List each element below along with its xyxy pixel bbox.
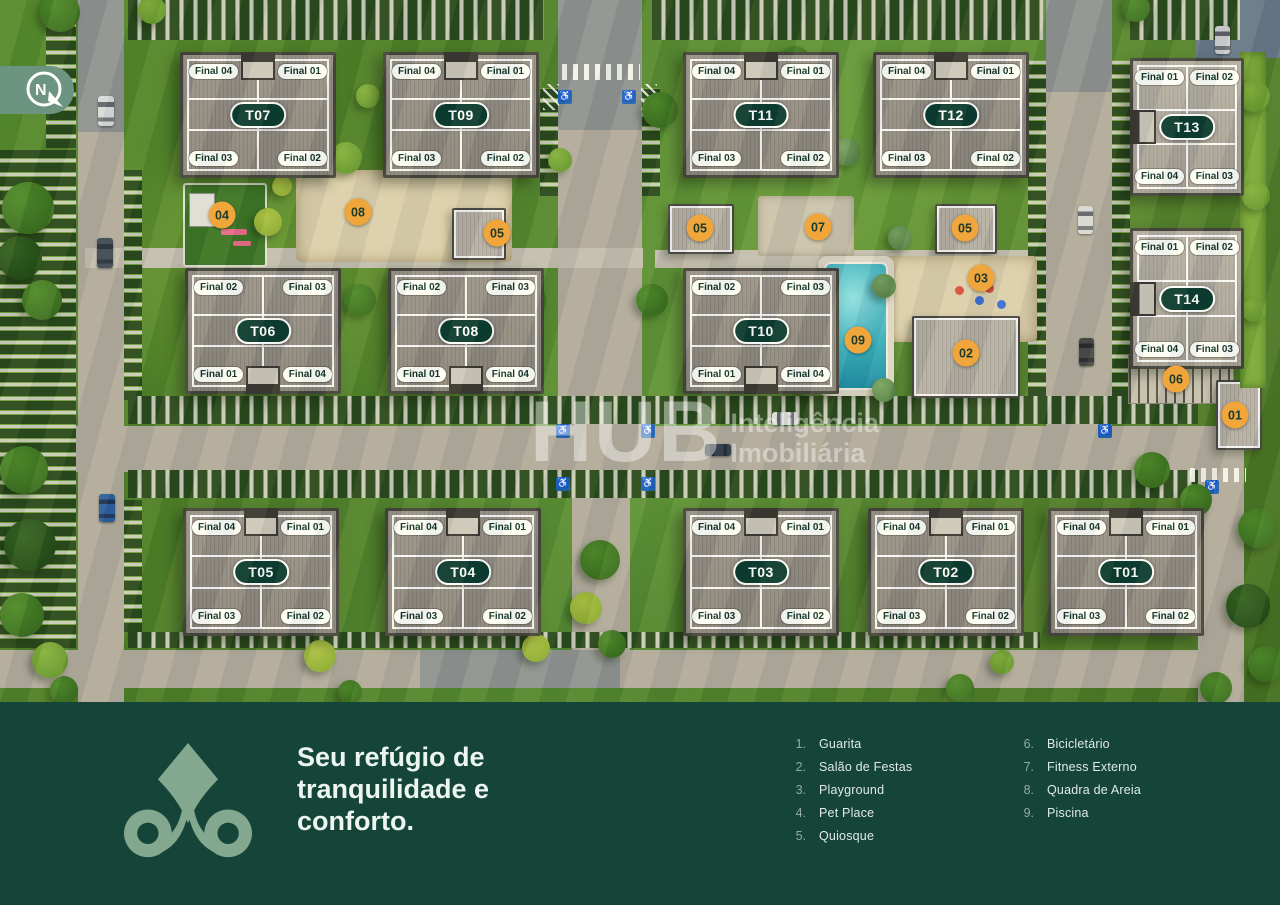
legend-item-number: 6. [1016,737,1034,751]
legend-item-label: Pet Place [819,806,874,820]
tree [1242,298,1266,322]
unit-final-label: Final 03 [283,280,332,295]
tree [872,274,896,298]
unit-final-label: Final 02 [781,609,830,624]
tree [888,226,912,250]
accessible-parking-icon: ♿ [558,90,572,104]
legend-item-label: Fitness Externo [1047,760,1137,774]
tree [0,446,48,494]
accessible-parking-icon: ♿ [556,477,570,491]
unit-final-label: Final 04 [392,64,441,79]
unit-final-label: Final 03 [692,151,741,166]
tree [356,84,380,108]
building-divider [691,555,831,557]
building-divider [691,129,831,131]
tree [580,540,620,580]
parking-row [1112,60,1130,396]
building-notch [1109,508,1143,536]
map-shade [420,650,620,688]
car [772,412,798,425]
amenities-legend-column-1: 1.Guarita2.Salão de Festas3.Playground4.… [788,737,912,852]
tower-T02: Final 04Final 01Final 03Final 02T02 [868,508,1024,636]
unit-final-label: Final 04 [882,64,931,79]
unit-final-label: Final 03 [1190,169,1239,184]
tree [1200,672,1232,702]
unit-final-label: Final 02 [971,151,1020,166]
amenity-badge: 09 [845,327,872,354]
legend-item-label: Playground [819,783,884,797]
amenity-badge: 03 [968,265,995,292]
legend-item-number: 9. [1016,806,1034,820]
legend-item: 6.Bicicletário [1016,737,1141,751]
unit-final-label: Final 04 [692,64,741,79]
tower-T14: Final 01Final 02Final 04Final 03T14 [1130,228,1244,369]
tower-T11: Final 04Final 01Final 03Final 02T11 [683,52,839,178]
compass-north-indicator: N [0,66,74,114]
map-road [0,426,1244,472]
tower-id-label: T08 [438,318,494,344]
building-notch [744,52,778,80]
tower-T01: Final 04Final 01Final 03Final 02T01 [1048,508,1204,636]
brand-logo-icon [112,738,264,881]
tower-id-label: T13 [1159,114,1215,140]
legend-item-number: 1. [788,737,806,751]
legend-item: 4.Pet Place [788,806,912,820]
unit-final-label: Final 04 [486,367,535,382]
amenity-badge: 05 [484,220,511,247]
playground-equipment [997,300,1006,309]
unit-final-label: Final 03 [394,609,443,624]
accessible-parking-icon: ♿ [641,477,655,491]
tree [642,92,678,128]
unit-final-label: Final 04 [192,520,241,535]
legend-item-number: 5. [788,829,806,843]
unit-final-label: Final 01 [278,64,327,79]
tower-id-label: T11 [734,102,789,128]
building-divider [691,345,831,347]
building-divider [188,98,328,100]
legend-item: 5.Quiosque [788,829,912,843]
building-divider [396,314,536,316]
car [97,238,113,268]
building-notch [929,508,963,536]
tree [1238,508,1278,548]
unit-final-label: Final 02 [781,151,830,166]
unit-final-label: Final 03 [692,609,741,624]
car [1215,26,1230,54]
building-notch [449,366,483,394]
accessible-parking-icon: ♿ [556,424,570,438]
no-parking-hatch [543,84,559,110]
tower-T12: Final 04Final 01Final 03Final 02T12 [873,52,1029,178]
building-divider [876,587,1016,589]
car [98,96,114,126]
tower-T09: Final 04Final 01Final 03Final 02T09 [383,52,539,178]
accessible-parking-icon: ♿ [622,90,636,104]
unit-final-label: Final 04 [394,520,443,535]
unit-final-label: Final 01 [781,520,830,535]
unit-final-label: Final 02 [281,609,330,624]
building-divider [691,314,831,316]
building-divider [1056,555,1196,557]
amenity-badge: 08 [345,199,372,226]
tree [254,208,282,236]
unit-final-label: Final 01 [194,367,243,382]
building-divider [1056,587,1196,589]
building-notch [246,366,280,394]
unit-final-label: Final 04 [877,520,926,535]
unit-final-label: Final 01 [1135,240,1184,255]
tree [1248,646,1280,682]
tree [272,176,292,196]
unit-final-label: Final 02 [194,280,243,295]
tree [0,236,42,280]
building-divider [191,555,331,557]
amenity-badge: 06 [1163,366,1190,393]
building-notch [1130,282,1156,316]
tree [50,676,78,702]
unit-final-label: Final 02 [966,609,1015,624]
accessible-parking-icon: ♿ [641,424,655,438]
unit-final-label: Final 02 [278,151,327,166]
tree [1242,182,1270,210]
car [1078,206,1093,234]
amenity-badge: 04 [209,202,236,229]
map-road [0,650,1244,688]
unit-final-label: Final 03 [192,609,241,624]
tower-id-label: T09 [433,102,489,128]
unit-final-label: Final 01 [397,367,446,382]
building-divider [691,587,831,589]
unit-final-label: Final 01 [1135,70,1184,85]
parking-row [128,0,544,40]
legend-item-label: Salão de Festas [819,760,912,774]
tree [4,519,56,571]
tower-id-label: T06 [235,318,291,344]
building-divider [393,555,533,557]
legend-item: 2.Salão de Festas [788,760,912,774]
car [99,494,115,522]
building-divider [691,98,831,100]
unit-final-label: Final 02 [397,280,446,295]
tower-T05: Final 04Final 01Final 03Final 02T05 [183,508,339,636]
unit-final-label: Final 01 [971,64,1020,79]
unit-final-label: Final 02 [1146,609,1195,624]
tower-id-label: T04 [435,559,491,585]
building-divider [391,98,531,100]
tree [304,640,336,672]
building-notch [744,366,778,394]
unit-final-label: Final 03 [882,151,931,166]
tower-id-label: T05 [233,559,289,585]
amenities-legend-column-2: 6.Bicicletário7.Fitness Externo8.Quadra … [1016,737,1141,829]
unit-final-label: Final 02 [1190,70,1239,85]
legend-item-label: Bicicletário [1047,737,1110,751]
unit-final-label: Final 01 [966,520,1015,535]
tower-T07: Final 04Final 01Final 03Final 02T07 [180,52,336,178]
tree [946,674,974,702]
building-notch [444,52,478,80]
unit-final-label: Final 02 [692,280,741,295]
unit-final-label: Final 01 [692,367,741,382]
masterplan-map: ♿♿♿♿♿♿♿♿ Final 04Final 01Final 03Final 0… [0,0,1280,702]
unit-final-label: Final 03 [877,609,926,624]
unit-final-label: Final 03 [1057,609,1106,624]
unit-final-label: Final 02 [1190,240,1239,255]
unit-final-label: Final 03 [781,280,830,295]
unit-final-label: Final 04 [283,367,332,382]
parking-row [124,500,142,632]
legend-item-number: 2. [788,760,806,774]
legend-item-number: 7. [1016,760,1034,774]
legend-item: 8.Quadra de Areia [1016,783,1141,797]
parking-row [652,0,1044,40]
unit-final-label: Final 04 [1057,520,1106,535]
unit-final-label: Final 03 [486,280,535,295]
tree [598,630,626,658]
tower-T04: Final 04Final 01Final 03Final 02T04 [385,508,541,636]
amenity-badge: 05 [952,215,979,242]
tree [548,148,572,172]
car [1079,338,1094,366]
tree [872,378,896,402]
tower-id-label: T03 [733,559,789,585]
pet-equipment [221,229,247,235]
tower-T10: Final 02Final 03Final 01Final 04T10 [683,268,839,394]
legend-item: 7.Fitness Externo [1016,760,1141,774]
building-notch [1130,110,1156,144]
tree [344,284,376,316]
parking-row [1028,60,1046,396]
tree [1226,584,1270,628]
building-notch [241,52,275,80]
tower-id-label: T12 [923,102,979,128]
legend-item: 3.Playground [788,783,912,797]
car [705,444,731,456]
legend-item: 1.Guarita [788,737,912,751]
tree [570,592,602,624]
tree [32,642,68,678]
building-divider [193,314,333,316]
amenity-badge: 05 [687,215,714,242]
legend-item: 9.Piscina [1016,806,1141,820]
unit-final-label: Final 04 [781,367,830,382]
tower-T03: Final 04Final 01Final 03Final 02T03 [683,508,839,636]
compass-letter: N [35,82,47,99]
building-divider [193,345,333,347]
legend-item-number: 3. [788,783,806,797]
unit-final-label: Final 01 [1146,520,1195,535]
tree [338,680,362,702]
building-divider [396,345,536,347]
compass-icon: N [22,68,66,112]
building-divider [881,98,1021,100]
building-divider [191,587,331,589]
tree [990,650,1014,674]
unit-final-label: Final 04 [1135,342,1184,357]
unit-final-label: Final 01 [483,520,532,535]
tower-T06: Final 02Final 03Final 01Final 04T06 [185,268,341,394]
unit-final-label: Final 03 [392,151,441,166]
legend-item-number: 8. [1016,783,1034,797]
tower-id-label: T01 [1098,559,1154,585]
tree [22,280,62,320]
parking-row [128,396,1198,424]
unit-final-label: Final 03 [189,151,238,166]
accessible-parking-icon: ♿ [1098,424,1112,438]
tree [0,593,44,637]
building-divider [876,555,1016,557]
building-notch [744,508,778,536]
unit-final-label: Final 01 [481,64,530,79]
amenity-badge: 01 [1222,402,1249,429]
pet-equipment [233,241,251,246]
parking-row [128,470,1198,498]
tree [636,284,668,316]
unit-final-label: Final 03 [1190,342,1239,357]
parking-row [124,170,142,400]
tree [522,634,550,662]
crosswalk [562,64,640,80]
legend-item-label: Piscina [1047,806,1089,820]
tagline: Seu refúgio de tranquilidade e conforto. [297,742,577,838]
unit-final-label: Final 02 [483,609,532,624]
tower-id-label: T10 [733,318,789,344]
legend-item-label: Guarita [819,737,861,751]
map-shade [1046,0,1112,92]
tree [1134,452,1170,488]
unit-final-label: Final 04 [1135,169,1184,184]
unit-final-label: Final 01 [281,520,330,535]
site-plan-image: ♿♿♿♿♿♿♿♿ Final 04Final 01Final 03Final 0… [0,0,1280,905]
building-divider [881,129,1021,131]
unit-final-label: Final 02 [481,151,530,166]
building-notch [244,508,278,536]
building-divider [188,129,328,131]
legend-item-label: Quiosque [819,829,874,843]
playground-equipment [975,296,984,305]
tree [2,182,54,234]
tower-T13: Final 01Final 02Final 04Final 03T13 [1130,58,1244,196]
building-divider [393,587,533,589]
unit-final-label: Final 01 [781,64,830,79]
amenity-badge: 02 [953,340,980,367]
building-notch [446,508,480,536]
tower-T08: Final 02Final 03Final 01Final 04T08 [388,268,544,394]
tower-id-label: T14 [1159,286,1215,312]
playground-equipment [955,286,964,295]
building-notch [934,52,968,80]
unit-final-label: Final 04 [189,64,238,79]
legend-item-number: 4. [788,806,806,820]
legend-item-label: Quadra de Areia [1047,783,1141,797]
amenity-badge: 07 [805,214,832,241]
unit-final-label: Final 04 [692,520,741,535]
building-divider [391,129,531,131]
tower-id-label: T07 [230,102,286,128]
tower-id-label: T02 [918,559,974,585]
